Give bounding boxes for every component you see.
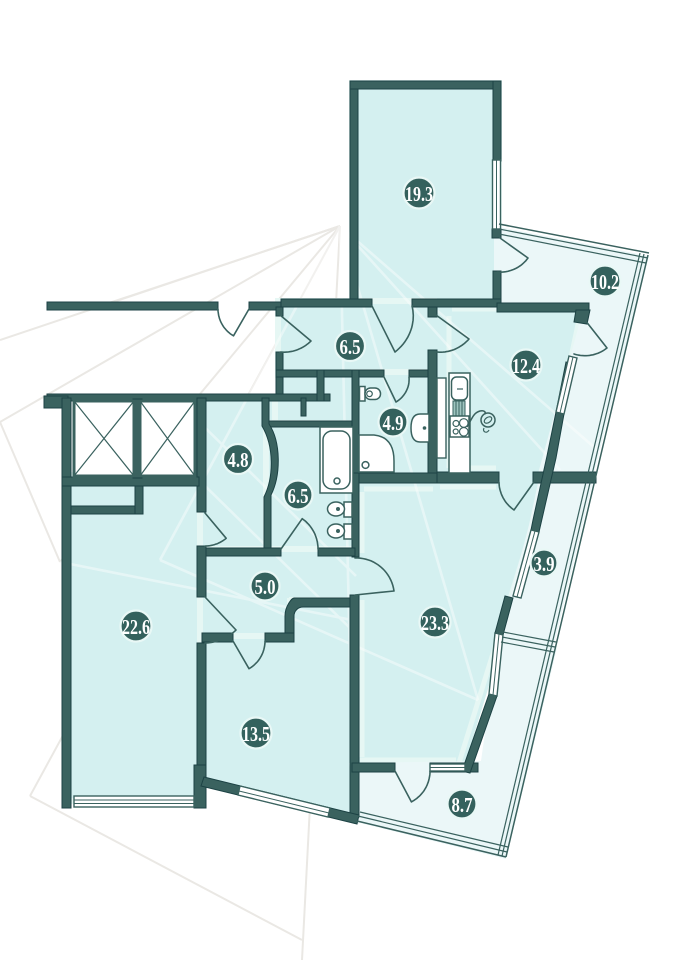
svg-text:3.9: 3.9 bbox=[534, 552, 555, 576]
svg-text:19.3: 19.3 bbox=[405, 182, 433, 206]
svg-text:6.5: 6.5 bbox=[288, 484, 309, 508]
svg-text:8.7: 8.7 bbox=[452, 793, 473, 817]
svg-text:4.8: 4.8 bbox=[228, 448, 249, 472]
svg-text:22.6: 22.6 bbox=[122, 615, 150, 639]
svg-text:10.2: 10.2 bbox=[591, 270, 619, 294]
svg-text:4.9: 4.9 bbox=[383, 411, 404, 435]
svg-text:5.0: 5.0 bbox=[255, 575, 276, 599]
svg-text:23.3: 23.3 bbox=[421, 611, 449, 635]
svg-text:12.4: 12.4 bbox=[512, 354, 540, 378]
svg-text:13.5: 13.5 bbox=[242, 722, 270, 746]
svg-text:6.5: 6.5 bbox=[340, 335, 361, 359]
